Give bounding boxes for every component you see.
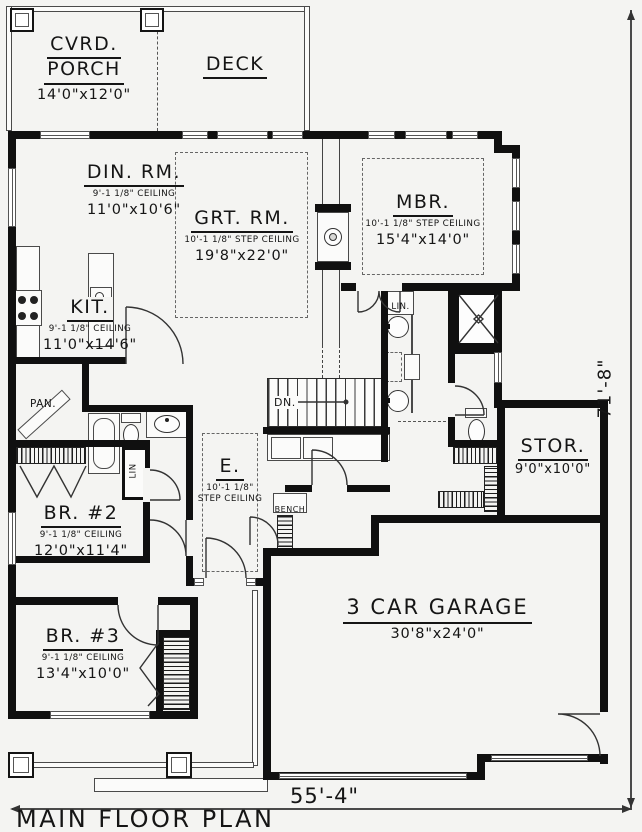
room-name: STOR. — [518, 436, 589, 461]
bifold-door-br2 — [20, 466, 86, 497]
faucet-icon — [384, 398, 390, 403]
wall-e-front-right — [256, 578, 271, 586]
window — [405, 131, 447, 139]
dimension-line-right — [630, 10, 632, 809]
window — [40, 131, 90, 139]
vanity-sink-icon — [387, 390, 409, 412]
toilet-tank-icon — [465, 408, 487, 418]
faucet-icon — [384, 324, 390, 329]
vanity-shelf — [404, 354, 420, 380]
room-name: DECK — [203, 54, 267, 79]
dimension-width-label: 55'-4" — [290, 784, 359, 808]
wall-stor-top — [494, 400, 608, 408]
wall-br3-closet-back — [156, 630, 163, 711]
porch-post — [140, 8, 164, 32]
doorway — [448, 383, 455, 417]
lin-hall-label: LIN — [129, 463, 139, 478]
room-name: CVRD. — [47, 34, 121, 59]
doorway — [204, 578, 246, 586]
porch-post — [10, 8, 34, 32]
door-arc — [150, 470, 180, 500]
linen-cabinet — [387, 291, 414, 315]
chimney-wall-dashed — [322, 345, 340, 378]
room-size: 11'0"x10'6" — [78, 202, 190, 218]
window — [512, 158, 520, 188]
window — [182, 131, 208, 139]
closet-hatch-master — [453, 447, 500, 464]
drawing-title: MAIN FLOOR PLAN — [16, 805, 274, 832]
wall-garage-top — [263, 548, 378, 556]
wall-bath-north — [82, 405, 193, 412]
wall-oven-icon — [271, 437, 301, 459]
doorway — [143, 468, 150, 502]
window — [8, 512, 16, 565]
doorway — [312, 485, 347, 492]
closet-hatch-br2 — [16, 447, 86, 464]
room-name: 3 CAR GARAGE — [343, 596, 531, 624]
window — [494, 352, 502, 383]
faucet-icon — [165, 418, 169, 422]
fireplace-icon — [315, 204, 351, 212]
wall-mudhall-vert — [371, 515, 379, 556]
vanity-sink-icon — [387, 316, 409, 338]
wall-br3-east — [190, 605, 198, 719]
sidelite-window — [194, 578, 204, 586]
room-label-stor: STOR. 9'0"x10'0" — [503, 436, 603, 478]
fireplace-flue-icon — [329, 233, 337, 241]
window — [452, 131, 478, 139]
ceiling-break-entry — [202, 433, 258, 572]
room-size: 13'4"x10'0" — [22, 666, 144, 682]
dimension-height-label: 71'-8" — [595, 354, 616, 424]
wall-mudhall-bottom — [371, 515, 608, 523]
room-label-garage: 3 CAR GARAGE 30'8"x24'0" — [330, 596, 545, 642]
doorway — [118, 597, 158, 605]
room-name: DIN. RM. — [84, 162, 184, 187]
room-size: 30'8"x24'0" — [330, 626, 545, 642]
porch-post — [166, 752, 192, 778]
stove-burner-icon — [18, 296, 26, 304]
front-step — [94, 778, 268, 792]
wall-br2-south — [8, 556, 150, 563]
garage-door — [491, 755, 588, 761]
makeup-seat — [386, 352, 402, 382]
chimney-wall — [322, 139, 340, 206]
wall-right-mid — [494, 283, 502, 405]
stove-burner-icon — [30, 296, 38, 304]
room-ceiling: 9'-1 1/8" CEILING — [22, 654, 144, 664]
bench — [273, 493, 307, 513]
garage-door — [279, 773, 467, 779]
wall-shower-left — [448, 291, 455, 352]
wall-stor-left — [497, 408, 505, 520]
dimension-arrow-down — [627, 798, 635, 808]
sink-basin-icon — [95, 306, 104, 315]
toilet-tank-icon — [121, 413, 141, 423]
closet-hatch-master — [438, 491, 484, 508]
window — [272, 131, 303, 139]
floor-plan: CVRD. PORCH 14'0"x12'0" DECK — [0, 0, 642, 832]
porch-edge-vert — [252, 590, 258, 766]
wall-garage-right — [600, 400, 608, 714]
ceiling-break-grt — [175, 152, 308, 318]
window — [50, 711, 150, 719]
wall-br3-north — [8, 597, 198, 605]
room-name: PORCH — [44, 59, 124, 84]
chimney-wall — [322, 268, 340, 345]
sidelite-window — [246, 578, 256, 586]
wall-pantry-east — [82, 364, 89, 412]
wall-powder-bottom — [448, 440, 502, 447]
stairs-dn-label: DN. — [272, 396, 298, 409]
doorway — [126, 357, 188, 364]
wall-kit-bottom — [8, 357, 126, 364]
room-label-cvrd-porch: CVRD. PORCH 14'0"x12'0" — [28, 34, 140, 103]
dishwasher-icon — [303, 437, 333, 459]
door-arc — [150, 520, 186, 556]
sink-basin-icon — [95, 292, 104, 301]
porch-post — [8, 752, 34, 778]
room-ceiling: 9'-1 1/8" CEILING — [22, 531, 140, 541]
stove-icon — [14, 290, 42, 326]
room-label-din: DIN. RM. 9'-1 1/8" CEILING 11'0"x10'6" — [78, 162, 190, 218]
closet-hatch-entry — [277, 515, 293, 552]
window — [512, 244, 520, 274]
room-label-deck: DECK — [192, 54, 278, 79]
window — [217, 131, 268, 139]
wall-stair-south — [263, 427, 390, 434]
doorway — [356, 283, 402, 291]
cased-opening — [398, 421, 446, 422]
stove-burner-icon — [30, 312, 38, 320]
wall-e-west-a — [186, 412, 193, 520]
fireplace-icon — [315, 262, 351, 270]
wall-bath-south — [16, 440, 150, 447]
room-size: 9'0"x10'0" — [503, 463, 603, 478]
porch-edge-horiz — [10, 762, 254, 768]
dimension-arrow-up — [627, 10, 635, 20]
doorway — [186, 520, 193, 556]
pan-label: PAN. — [30, 398, 56, 410]
stove-burner-icon — [18, 312, 26, 320]
closet-hatch-br3 — [163, 637, 190, 710]
door-arc — [118, 605, 158, 645]
room-name: BR. #3 — [43, 626, 124, 651]
room-ceiling: 9'-1 1/8" CEILING — [78, 190, 190, 200]
doorway — [600, 712, 608, 754]
window — [368, 131, 395, 139]
room-label-br2: BR. #2 9'-1 1/8" CEILING 12'0"x11'4" — [22, 503, 140, 559]
deck-edge-right — [304, 6, 310, 131]
window — [512, 201, 520, 231]
room-size: 14'0"x12'0" — [28, 87, 140, 103]
ceiling-break-mbr — [362, 158, 484, 275]
wall-laundry-west — [381, 291, 388, 462]
room-label-br3: BR. #3 9'-1 1/8" CEILING 13'4"x10'0" — [22, 626, 144, 682]
window — [8, 168, 16, 227]
door-arc — [558, 714, 600, 756]
room-name: BR. #2 — [41, 503, 122, 528]
